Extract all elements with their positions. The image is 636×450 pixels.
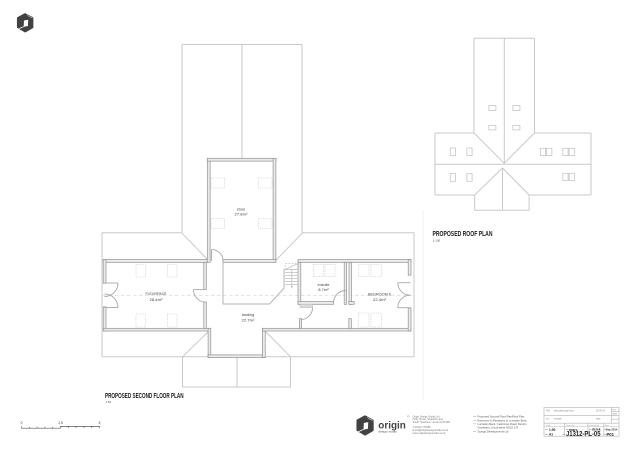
svg-text:www.origindesignstudio.co.uk: www.origindesignstudio.co.uk bbox=[413, 432, 447, 435]
svg-text:J1312-PL-05: J1312-PL-05 bbox=[566, 431, 601, 438]
svg-text:revision: revision bbox=[554, 418, 563, 421]
svg-text:FLEXISPACE: FLEXISPACE bbox=[146, 292, 167, 296]
svg-text:1:50: 1:50 bbox=[105, 400, 111, 404]
svg-text:drawn by: drawn by bbox=[567, 424, 575, 427]
svg-text:draft planning issue: draft planning issue bbox=[554, 409, 575, 412]
svg-text:1:100: 1:100 bbox=[433, 238, 441, 242]
svg-text:P01: P01 bbox=[607, 432, 615, 437]
svg-text:28.4m²: 28.4m² bbox=[150, 298, 164, 302]
svg-text:22.7m²: 22.7m² bbox=[242, 319, 256, 323]
svg-text:date: date bbox=[613, 413, 618, 416]
svg-text:landing: landing bbox=[242, 313, 255, 317]
svg-text:A1: A1 bbox=[549, 432, 553, 436]
svg-text:checked by: checked by bbox=[590, 425, 600, 427]
svg-text:0: 0 bbox=[21, 421, 23, 425]
svg-text:BEDROOM 6: BEDROOM 6 bbox=[368, 293, 391, 297]
svg-text:Proposed Second Floor Plan/Roo: Proposed Second Floor Plan/Roof Plan bbox=[478, 415, 525, 419]
svg-text:P01: P01 bbox=[546, 410, 551, 412]
svg-text:South Hykeham, Lincoln LN6 9P: South Hykeham, Lincoln LN6 9PF bbox=[413, 421, 451, 424]
svg-text:PROPOSED SECOND FLOOR PLAN: PROPOSED SECOND FLOOR PLAN bbox=[105, 393, 184, 400]
svg-text:Lumsden Beck, Casthorpe Road,: Lumsden Beck, Casthorpe Road, Denton bbox=[478, 422, 528, 426]
svg-text:Scargo Developments Ltd: Scargo Developments Ltd bbox=[478, 429, 509, 433]
svg-text:22.4m²: 22.4m² bbox=[373, 298, 387, 302]
svg-text:PROPOSED ROOF PLAN: PROPOSED ROOF PLAN bbox=[433, 231, 493, 238]
svg-text:27.8m²: 27.8m² bbox=[235, 213, 249, 217]
svg-text:scale: scale bbox=[546, 425, 550, 427]
svg-text:2.5: 2.5 bbox=[58, 421, 63, 425]
svg-text:Extension & Alterations to Lum: Extension & Alterations to Lumsden Beck bbox=[478, 418, 528, 422]
svg-text:design studio: design studio bbox=[379, 430, 398, 434]
svg-text:8.7m²: 8.7m² bbox=[318, 288, 329, 292]
svg-text:09.09.14: 09.09.14 bbox=[596, 410, 606, 412]
svg-text:no.: no. bbox=[546, 419, 550, 421]
svg-text:1:50: 1:50 bbox=[549, 428, 556, 432]
svg-text:date: date bbox=[596, 418, 601, 421]
svg-text:store: store bbox=[237, 208, 246, 212]
svg-text:date: date bbox=[605, 424, 609, 427]
svg-text:ensuite: ensuite bbox=[318, 283, 330, 287]
svg-text:5: 5 bbox=[99, 421, 101, 425]
svg-text:Grantham, Lincolnshire NG32 1J: Grantham, Lincolnshire NG32 1JT bbox=[478, 426, 519, 430]
